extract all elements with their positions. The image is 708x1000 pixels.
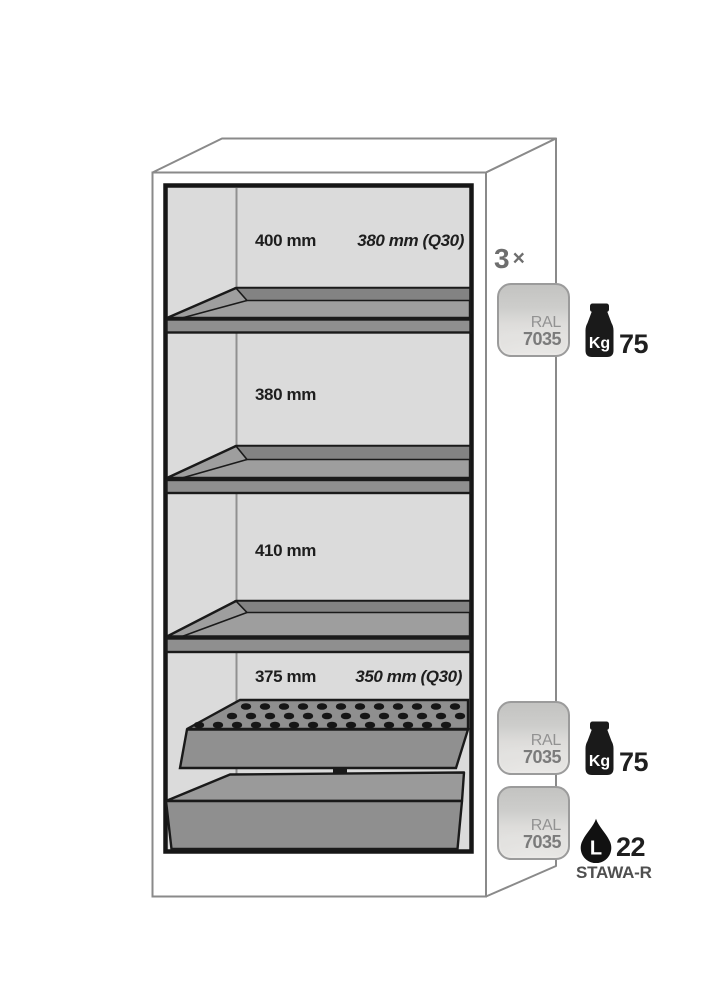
liter-unit-label: L [590,838,602,860]
ral-7035-swatch-insert: RAL 7035 [497,701,570,775]
weight-kg-icon: Kg [581,303,618,358]
compartment-4-height-label: 375 mm [255,667,316,686]
stawa-r-approval-label: STAWA-R [576,863,652,883]
ral-7035-swatch-shelf: RAL 7035 [497,283,570,357]
multiply-icon: × [513,247,524,270]
compartment-1-depth-q30-label: 380 mm (Q30) [357,231,464,250]
insert-load-capacity-value: 75 [619,749,648,776]
compartment-3-height-label: 410 mm [255,541,316,560]
sump-tray [166,773,464,850]
kg-unit-label: Kg [589,753,610,770]
drop-icon: L [579,818,613,863]
shelf-count-label: 3× [494,245,524,273]
shelf-count-number: 3 [494,243,509,274]
compartment-2-height-label: 380 mm [255,385,316,404]
shelf-load-capacity-value: 75 [619,331,648,358]
perforated-insert [180,700,468,768]
weight-kg-icon: Kg [581,721,618,776]
sump-volume-value: 22 [616,834,645,861]
ral-code-label: 7035 [523,834,561,851]
compartment-4-depth-q30-label: 350 mm (Q30) [355,667,462,686]
compartment-1-height-label: 400 mm [255,231,316,250]
ral-7035-swatch-sump: RAL 7035 [497,786,570,860]
ral-code-label: 7035 [523,331,561,348]
ral-code-label: 7035 [523,749,561,766]
kg-unit-label: Kg [589,335,610,352]
safety-cabinet-diagram: 400 mm 380 mm (Q30) 380 mm 410 mm 375 mm… [0,0,708,1000]
